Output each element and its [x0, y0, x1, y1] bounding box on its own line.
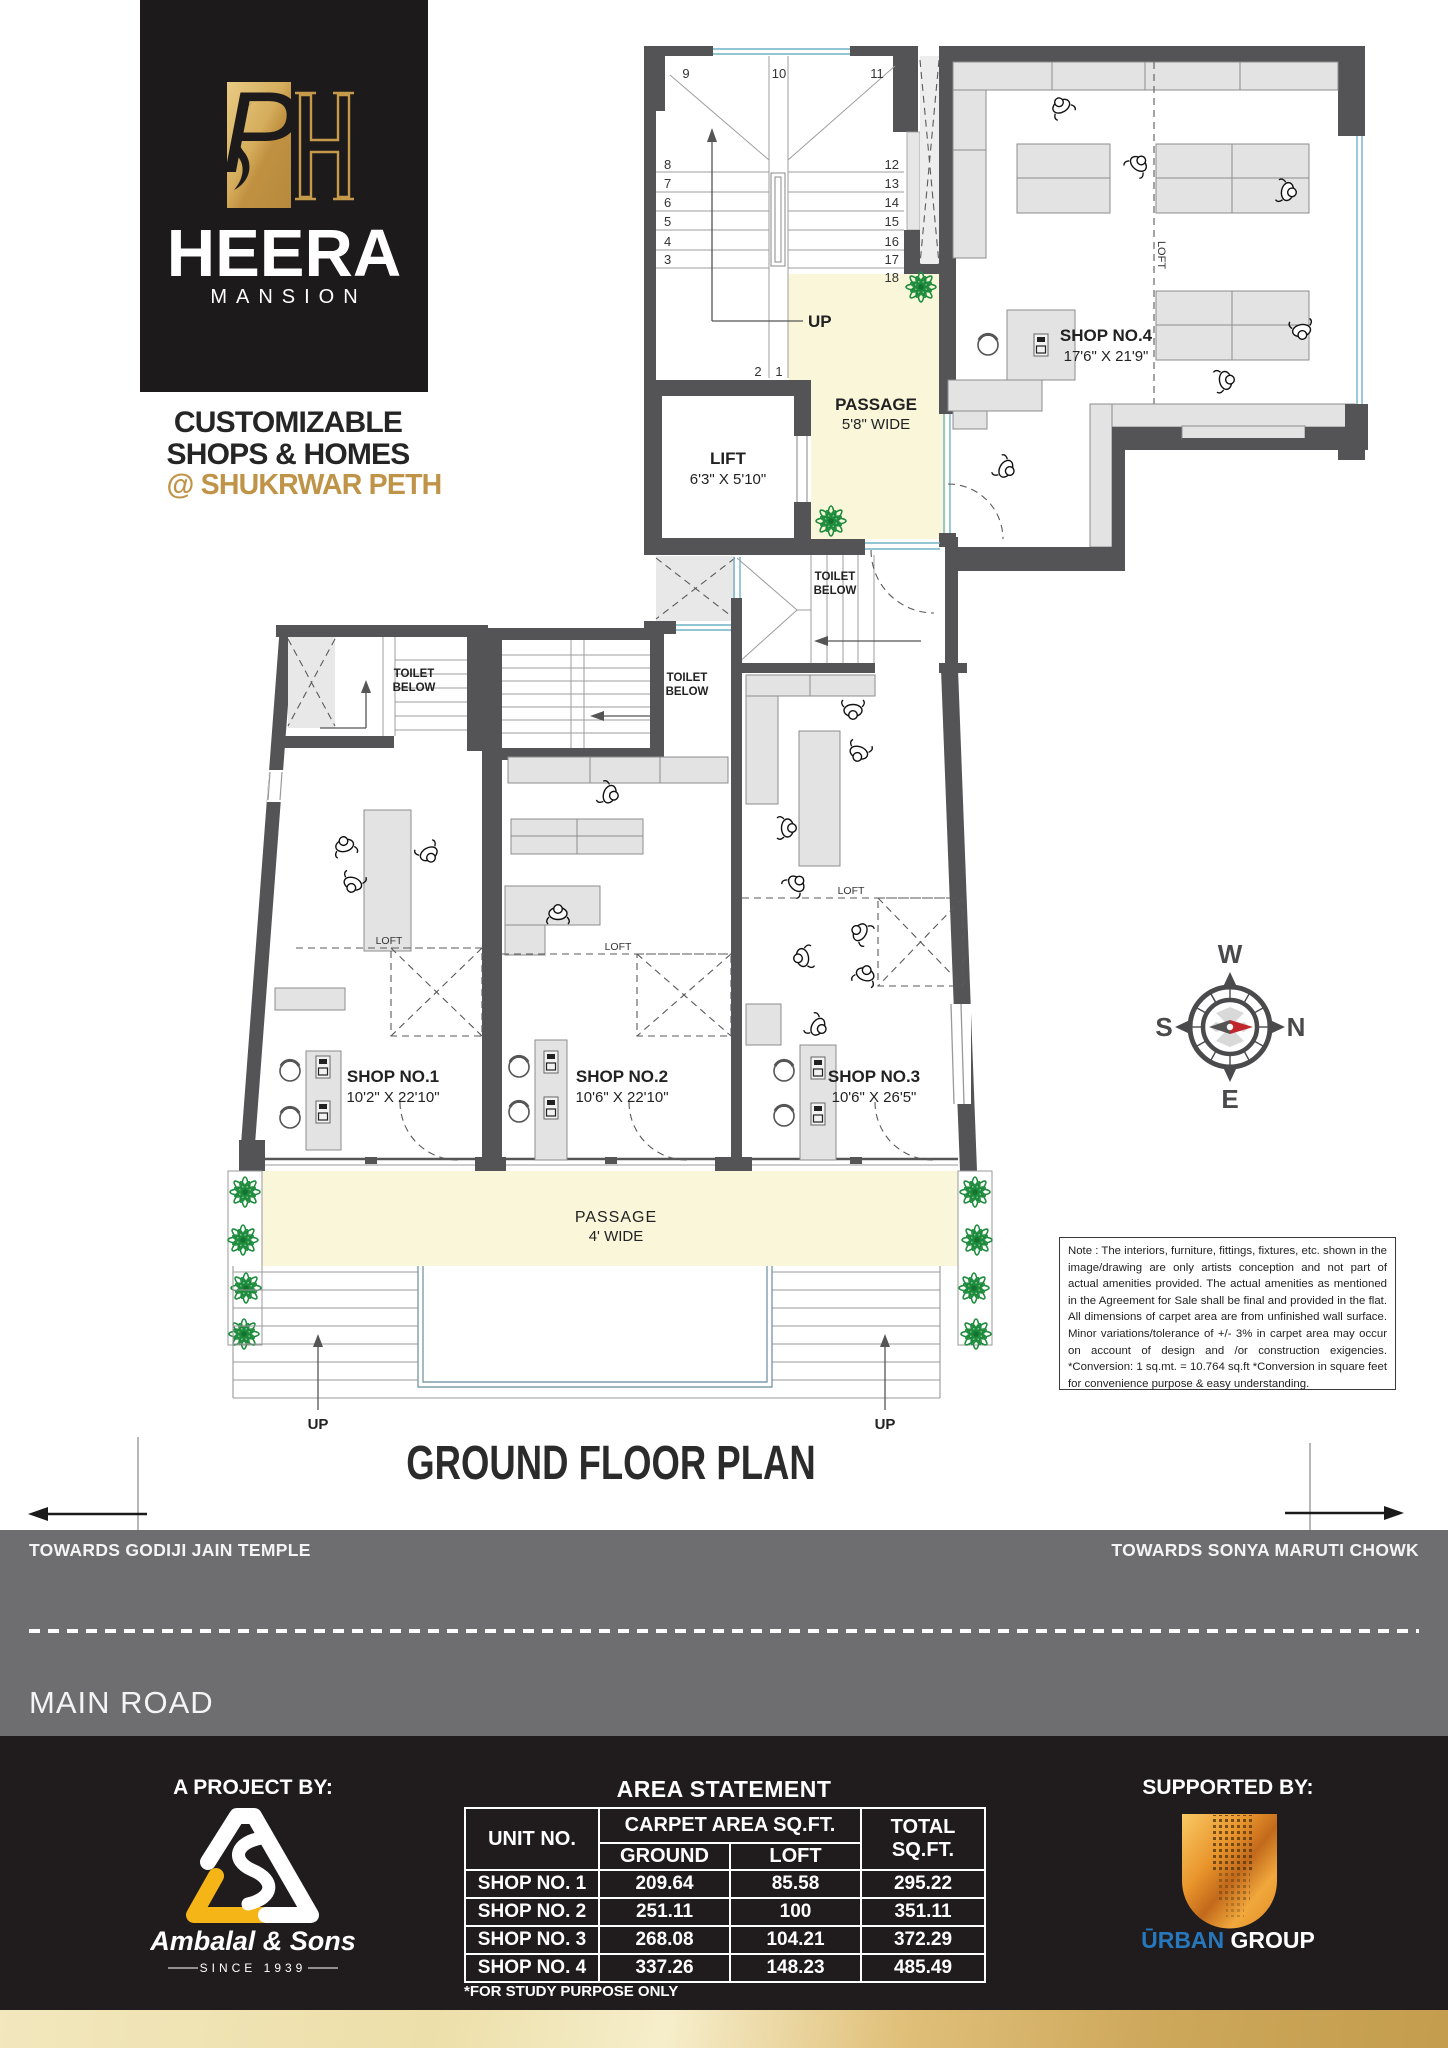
svg-text:12: 12 [885, 157, 899, 172]
svg-text:10'2" X 22'10": 10'2" X 22'10" [346, 1089, 439, 1106]
svg-text:ŪRBAN GROUP: ŪRBAN GROUP [1141, 1927, 1315, 1953]
svg-text:LOFT: LOFT [605, 941, 632, 953]
svg-text:LIFT: LIFT [710, 449, 746, 468]
svg-text:Ambalal & Sons: Ambalal & Sons [150, 1926, 356, 1956]
svg-text:10'6" X 26'5": 10'6" X 26'5" [832, 1089, 917, 1106]
svg-text:2: 2 [754, 364, 761, 379]
svg-text:4: 4 [664, 234, 671, 249]
svg-text:5'8" WIDE: 5'8" WIDE [842, 416, 910, 433]
svg-text:1: 1 [775, 364, 782, 379]
svg-text:UP: UP [808, 312, 832, 331]
svg-text:W: W [1218, 939, 1243, 969]
svg-text:7: 7 [664, 176, 671, 191]
svg-text:10'6" X 22'10": 10'6" X 22'10" [575, 1089, 668, 1106]
svg-text:PASSAGE: PASSAGE [575, 1209, 657, 1226]
svg-text:SINCE 1939: SINCE 1939 [200, 1961, 307, 1975]
svg-text:S: S [1155, 1012, 1172, 1042]
svg-text:LOFT: LOFT [1155, 241, 1167, 269]
svg-text:E: E [1221, 1084, 1238, 1114]
svg-text:TOILET: TOILET [815, 571, 856, 583]
svg-text:LOFT: LOFT [376, 935, 403, 947]
svg-text:6'3" X 5'10": 6'3" X 5'10" [690, 471, 766, 488]
svg-text:N: N [1287, 1012, 1306, 1042]
svg-text:3: 3 [664, 252, 671, 267]
svg-text:TOILET: TOILET [394, 668, 435, 680]
svg-text:8: 8 [664, 157, 671, 172]
svg-text:UP: UP [308, 1416, 329, 1433]
svg-text:SHOP NO.1: SHOP NO.1 [347, 1067, 439, 1086]
svg-text:17'6" X 21'9": 17'6" X 21'9" [1064, 348, 1149, 365]
svg-text:BELOW: BELOW [814, 585, 857, 597]
svg-text:SHOP NO.2: SHOP NO.2 [576, 1067, 668, 1086]
svg-text:PASSAGE: PASSAGE [835, 395, 917, 414]
svg-text:BELOW: BELOW [393, 682, 436, 694]
svg-text:SHOP NO.4: SHOP NO.4 [1060, 326, 1153, 345]
svg-text:16: 16 [885, 234, 899, 249]
svg-text:13: 13 [885, 176, 899, 191]
svg-text:18: 18 [885, 270, 899, 285]
svg-text:LOFT: LOFT [838, 885, 865, 897]
svg-text:14: 14 [885, 195, 899, 210]
svg-text:5: 5 [664, 214, 671, 229]
svg-text:11: 11 [870, 66, 884, 81]
svg-text:9: 9 [682, 66, 689, 81]
svg-text:UP: UP [875, 1416, 896, 1433]
svg-text:BELOW: BELOW [666, 686, 709, 698]
svg-text:SHOP NO.3: SHOP NO.3 [828, 1067, 920, 1086]
svg-text:6: 6 [664, 195, 671, 210]
svg-text:TOILET: TOILET [667, 672, 708, 684]
svg-text:15: 15 [885, 214, 899, 229]
svg-text:10: 10 [772, 66, 786, 81]
svg-text:17: 17 [885, 252, 899, 267]
svg-text:4' WIDE: 4' WIDE [589, 1228, 644, 1245]
